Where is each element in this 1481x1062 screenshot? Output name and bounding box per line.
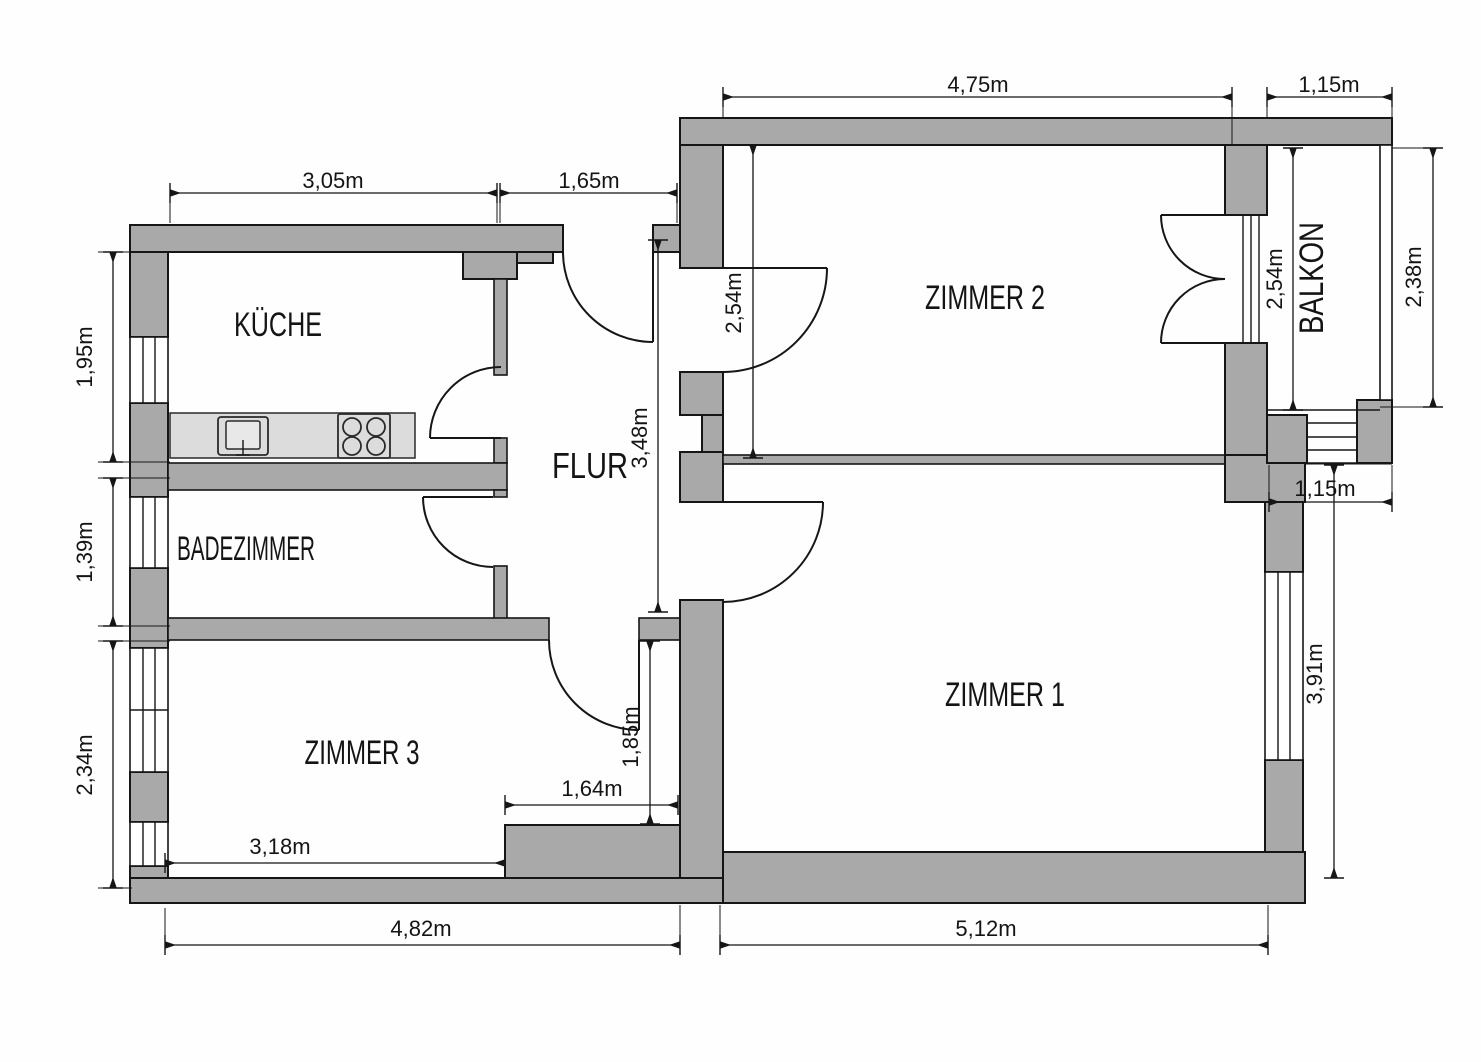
- room-labels: KÜCHE BADEZIMMER ZIMMER 3 FLUR ZIMMER 2 …: [177, 222, 1331, 772]
- kitchen-fixtures: [170, 413, 415, 458]
- dim-label-zimmer1-w: 5,12m: [955, 916, 1016, 941]
- dim-label-left-section-w: 4,82m: [390, 916, 451, 941]
- balcony-french-door: [1161, 215, 1259, 343]
- wall-step-block: [505, 825, 680, 878]
- dim-label-balkon-w: 1,15m: [1298, 72, 1359, 97]
- window-kueche: [130, 337, 168, 403]
- dim-label-zimmer3-w: 3,18m: [249, 834, 310, 859]
- label-badezimmer: BADEZIMMER: [177, 530, 315, 568]
- dim-label-flur-h: 3,48m: [627, 407, 652, 468]
- extension-lines: [98, 90, 1440, 952]
- wall-top-left-stub: [653, 225, 680, 252]
- dim-label-zimmer1-h: 3,91m: [1302, 643, 1327, 704]
- door-arc: [563, 252, 653, 342]
- wall-top-right-section: [680, 118, 1392, 145]
- window-zimmer3-lower: [130, 822, 168, 866]
- dim-label-bad-h: 1,39m: [72, 521, 97, 582]
- wall-kueche-flur-upper: [494, 279, 507, 375]
- wall-column-4: [680, 600, 723, 878]
- wall-bottom-right-section: [723, 852, 1305, 903]
- dim-label-balkon-w-lower: 1,15m: [1294, 476, 1355, 501]
- wall-left-5: [130, 866, 168, 878]
- wall-zimmer2-balkon-lower: [1225, 343, 1267, 455]
- wall-kueche-flur-lower: [494, 438, 507, 463]
- wall-balkon-stub-left: [1267, 415, 1307, 463]
- wall-bad-flur-lower: [494, 566, 507, 620]
- window-zimmer3-upper: [130, 648, 168, 772]
- badezimmer-door: [423, 497, 493, 567]
- label-flur: FLUR: [552, 445, 628, 486]
- wall-bottom-left-section: [130, 878, 723, 903]
- wall-right-upper: [1265, 502, 1303, 572]
- door-arc: [1161, 279, 1225, 343]
- wall-left-3: [130, 568, 168, 648]
- label-balkon: BALKON: [1293, 222, 1331, 334]
- wall-column-notch: [702, 415, 723, 452]
- stove-icon: [338, 414, 390, 458]
- dim-label-kueche-w: 3,05m: [302, 168, 363, 193]
- door-arc: [723, 502, 823, 602]
- walls: [130, 118, 1392, 903]
- dim-label-kueche-h: 1,95m: [72, 326, 97, 387]
- door-arc: [1161, 215, 1225, 279]
- dim-label-balkon-h-outer: 2,38m: [1401, 246, 1426, 307]
- sink-icon: [218, 417, 268, 455]
- dim-label-flur-w: 1,65m: [558, 168, 619, 193]
- window-zimmer1: [1265, 572, 1303, 760]
- wall-left-4: [130, 772, 168, 822]
- floor-plan: KÜCHE BADEZIMMER ZIMMER 3 FLUR ZIMMER 2 …: [0, 0, 1481, 1062]
- wall-pier-step-1: [463, 252, 517, 279]
- wall-flur-bottom-stub: [639, 618, 680, 640]
- wall-top-left-section: [130, 225, 563, 252]
- wall-zimmer2-balkon-upper: [1225, 145, 1267, 215]
- wall-pier-step-2: [517, 252, 553, 263]
- label-zimmer1: ZIMMER 1: [945, 676, 1065, 714]
- door-arc: [423, 497, 493, 567]
- wall-zimmer2-zimmer1: [723, 455, 1225, 464]
- window-badezimmer: [130, 497, 168, 568]
- wall-column-1: [680, 145, 723, 268]
- dim-label-zimmer2-w: 4,75m: [947, 72, 1008, 97]
- dim-label-niche-w: 1,64m: [561, 776, 622, 801]
- label-zimmer3: ZIMMER 3: [305, 734, 420, 772]
- wall-kueche-bad: [168, 463, 507, 490]
- dimension-labels: 3,05m 1,65m 4,75m 1,15m 1,15m 1,64m 3,18…: [72, 72, 1426, 941]
- wall-left-2: [130, 403, 168, 497]
- label-kueche: KÜCHE: [234, 306, 322, 344]
- dim-label-zimmer3-h: 2,34m: [72, 734, 97, 795]
- wall-bad-flur-upper: [494, 490, 507, 497]
- doors: [423, 215, 1259, 730]
- floor-plan-page: KÜCHE BADEZIMMER ZIMMER 3 FLUR ZIMMER 2 …: [0, 0, 1481, 1062]
- wall-column-2: [680, 372, 723, 415]
- dim-label-niche-h: 1,85m: [618, 706, 643, 767]
- kueche-door: [430, 367, 501, 438]
- label-zimmer2: ZIMMER 2: [925, 279, 1045, 317]
- door-arc: [430, 367, 501, 438]
- dim-label-zimmer2-h: 2,54m: [721, 272, 746, 333]
- entrance-door: [563, 252, 653, 342]
- wall-bad-zimmer3: [168, 618, 549, 640]
- dim-label-balkon-h-inner: 2,54m: [1262, 248, 1287, 309]
- zimmer1-door: [723, 502, 823, 602]
- wall-column-3: [680, 452, 723, 502]
